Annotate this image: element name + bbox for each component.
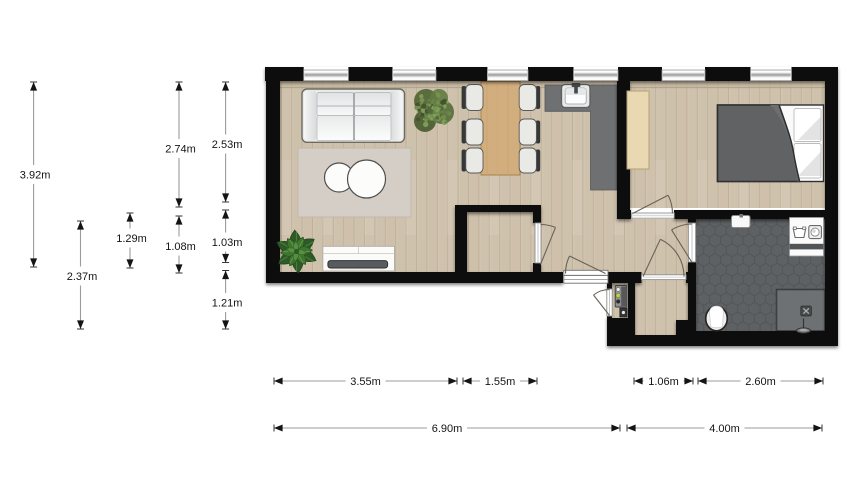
svg-text:2.53m: 2.53m (212, 139, 243, 151)
svg-text:3.92m: 3.92m (20, 170, 51, 182)
svg-text:2.37m: 2.37m (67, 271, 98, 283)
svg-text:3.55m: 3.55m (350, 376, 381, 388)
svg-text:6.90m: 6.90m (432, 423, 463, 435)
svg-text:2.60m: 2.60m (745, 376, 776, 388)
svg-text:1.03m: 1.03m (212, 237, 243, 249)
svg-text:1.06m: 1.06m (648, 376, 679, 388)
svg-text:1.55m: 1.55m (485, 376, 516, 388)
svg-text:1.08m: 1.08m (165, 241, 196, 253)
svg-text:2.74m: 2.74m (165, 144, 196, 156)
svg-text:4.00m: 4.00m (709, 423, 740, 435)
svg-text:1.29m: 1.29m (116, 233, 147, 245)
svg-text:1.21m: 1.21m (212, 298, 243, 310)
